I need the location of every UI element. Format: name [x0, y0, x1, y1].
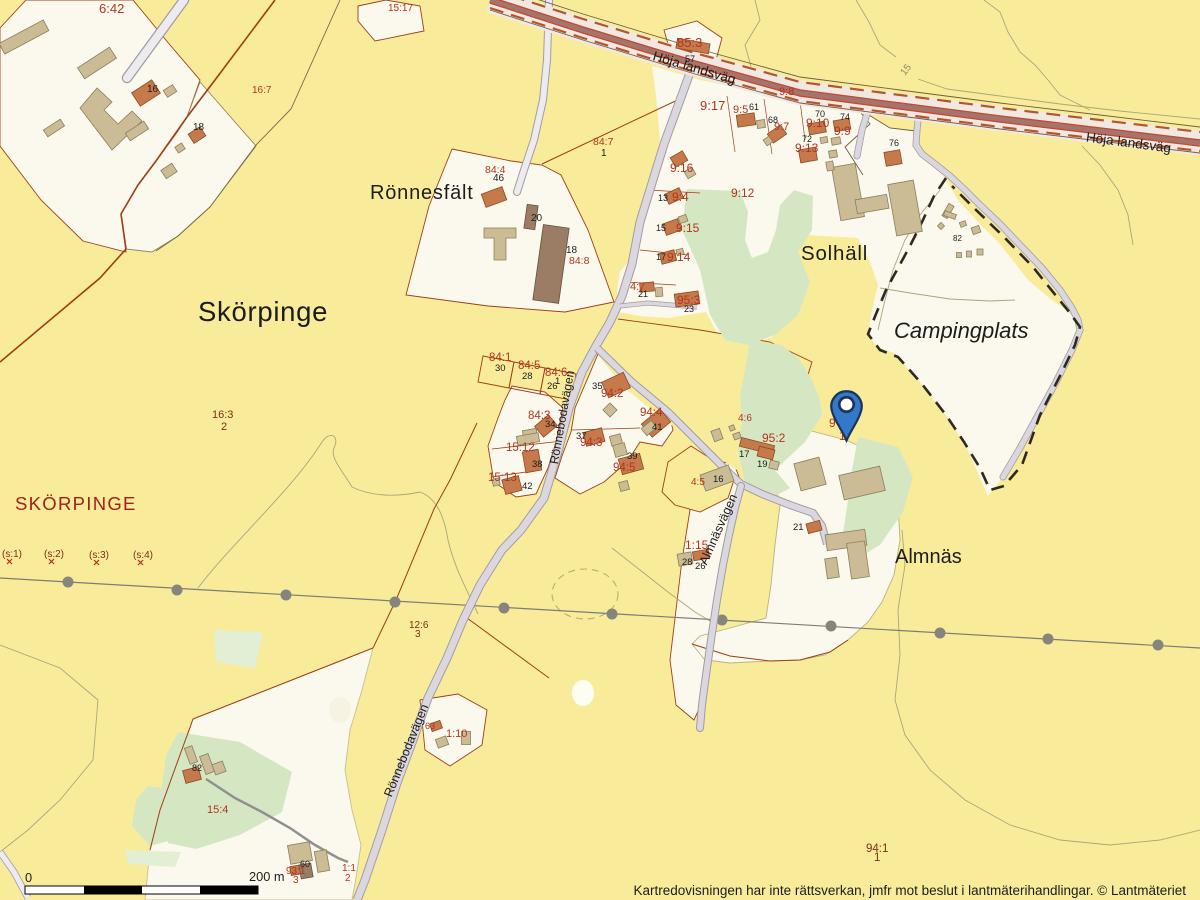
svg-text:9:8: 9:8	[779, 86, 794, 98]
svg-text:9:16: 9:16	[670, 161, 694, 175]
svg-text:94:4: 94:4	[640, 407, 663, 419]
svg-text:95:2: 95:2	[762, 431, 786, 445]
svg-text:42: 42	[522, 481, 533, 492]
svg-text:16:3: 16:3	[212, 409, 233, 421]
svg-text:70: 70	[815, 109, 825, 119]
svg-text:19: 19	[757, 459, 768, 470]
svg-text:39: 39	[627, 451, 638, 462]
svg-text:30: 30	[495, 363, 506, 374]
svg-text:(s:1): (s:1)	[2, 549, 22, 560]
svg-text:21: 21	[793, 522, 804, 533]
svg-text:1:10: 1:10	[446, 728, 467, 740]
svg-text:9:9: 9:9	[834, 124, 851, 138]
svg-text:85:3: 85:3	[677, 35, 702, 50]
svg-text:16: 16	[147, 84, 159, 95]
svg-text:6:42: 6:42	[99, 1, 124, 16]
svg-text:72: 72	[802, 134, 812, 144]
svg-text:63: 63	[425, 721, 435, 731]
svg-text:4:5: 4:5	[691, 477, 705, 488]
svg-text:18: 18	[193, 122, 205, 133]
svg-text:Kartredovisningen har inte rät: Kartredovisningen har inte rättsverkan, …	[634, 883, 1187, 898]
svg-text:Solhäll: Solhäll	[801, 242, 868, 265]
svg-text:9:14: 9:14	[667, 250, 691, 264]
svg-text:21: 21	[638, 289, 648, 299]
svg-text:15: 15	[656, 223, 666, 233]
svg-text:94:5: 94:5	[613, 462, 635, 474]
svg-text:94:2: 94:2	[601, 388, 623, 400]
svg-text:46: 46	[493, 173, 505, 184]
svg-text:38: 38	[532, 459, 543, 470]
svg-text:9:15: 9:15	[676, 221, 700, 235]
svg-text:76: 76	[889, 138, 899, 148]
svg-text:37: 37	[576, 431, 587, 442]
svg-text:Almnäs: Almnäs	[895, 546, 962, 568]
svg-text:35: 35	[592, 381, 603, 392]
svg-text:13: 13	[658, 193, 668, 203]
svg-text:9:12: 9:12	[731, 186, 755, 200]
svg-text:26: 26	[547, 381, 558, 392]
svg-text:2: 2	[221, 421, 227, 433]
svg-text:16: 16	[713, 474, 724, 485]
svg-text:16:7: 16:7	[252, 85, 272, 96]
svg-text:84:8: 84:8	[569, 255, 590, 267]
svg-text:15:17: 15:17	[388, 3, 413, 14]
svg-text:(s:2): (s:2)	[44, 549, 64, 560]
svg-text:9:17: 9:17	[700, 98, 725, 113]
svg-text:28: 28	[682, 557, 693, 568]
svg-text:9:4: 9:4	[672, 190, 689, 204]
svg-text:82: 82	[192, 763, 202, 773]
svg-text:17: 17	[739, 449, 750, 460]
svg-text:41: 41	[652, 422, 663, 433]
svg-text:Skörpinge: Skörpinge	[198, 296, 328, 327]
svg-text:20: 20	[531, 213, 543, 224]
svg-text:4:6: 4:6	[738, 413, 752, 424]
svg-text:15:13: 15:13	[488, 472, 517, 484]
svg-text:SKÖRPINGE: SKÖRPINGE	[15, 493, 137, 514]
svg-text:3: 3	[415, 629, 421, 640]
svg-text:15:4: 15:4	[207, 804, 228, 816]
svg-text:28: 28	[522, 371, 533, 382]
svg-text:0: 0	[25, 870, 32, 885]
svg-text:68: 68	[768, 115, 778, 125]
svg-text:15:12: 15:12	[506, 442, 535, 454]
svg-text:61: 61	[749, 102, 759, 112]
svg-text:200 m: 200 m	[249, 869, 285, 884]
svg-text:23: 23	[684, 304, 694, 314]
svg-text:82: 82	[953, 234, 962, 243]
svg-text:(s:4): (s:4)	[133, 550, 153, 561]
svg-text:1: 1	[874, 852, 880, 864]
svg-text:1: 1	[601, 148, 607, 159]
svg-text:Rönnesfält: Rönnesfält	[370, 182, 474, 204]
svg-text:(s:3): (s:3)	[89, 550, 109, 561]
svg-text:17: 17	[656, 252, 666, 262]
svg-text:2: 2	[345, 873, 351, 884]
svg-text:Campingplats: Campingplats	[894, 318, 1029, 343]
svg-text:9:5: 9:5	[733, 104, 748, 116]
svg-text:74: 74	[840, 112, 850, 122]
svg-text:84:7: 84:7	[593, 136, 614, 148]
svg-text:3: 3	[293, 875, 299, 886]
